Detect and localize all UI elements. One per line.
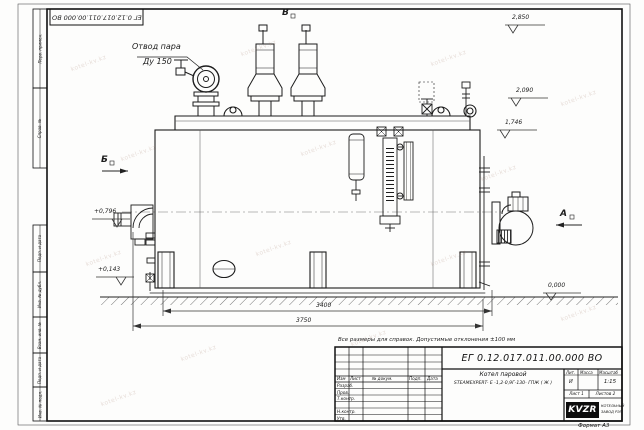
tb-header-ndocum: № докум.	[372, 376, 393, 381]
strip-label: Справ. №	[38, 118, 43, 137]
tb-product-name-line1: Котел паровой	[442, 371, 564, 378]
tb-sheet-text: Лист 1	[569, 391, 584, 396]
company-logo-text: KVZR	[568, 405, 597, 415]
steam-outlet-valve	[174, 60, 219, 116]
tb-sheets: Листов 2	[589, 391, 622, 396]
elevation-0143: +0,143	[98, 267, 120, 273]
safety-valve-1	[248, 25, 282, 116]
tb-header-izm: Изм	[337, 376, 346, 381]
strip-cell-invdubl: Инв. № дубл.	[33, 272, 47, 317]
elevation-0000: 0,000	[548, 283, 565, 289]
tb-row-razrab: Разраб.	[337, 383, 353, 388]
tb-mass-header: Масса	[580, 370, 593, 375]
elevation-1746: 1,746	[505, 120, 522, 126]
tb-product-name-line1-text: Котел паровой	[479, 371, 526, 378]
tb-row-nkontr: Н.контр.	[337, 409, 356, 414]
strip-cell-podp2: Подп. и дата	[33, 353, 47, 387]
tb-product-name-line2: STEAMEXPERT- Е -1,2-0,9Г-130- ГПЖ ( Ж )	[442, 381, 564, 386]
tb-company-line1: КОТЕЛЬНЫЙ	[601, 404, 624, 408]
title-doc-number: ЕГ 0.12.017.011.00.000 ВО	[442, 347, 622, 369]
dim-3400: 3400	[316, 303, 331, 309]
company-logo: KVZR	[566, 402, 599, 418]
elevation-marks	[92, 25, 581, 300]
tb-row-tkontr: Т.контр.	[337, 396, 355, 401]
steam-outlet-label-line2: Ду 150	[143, 58, 172, 66]
top-fittings	[419, 82, 470, 116]
elevation-0796: +0,796	[94, 209, 116, 215]
tb-scale-value: 1:15	[598, 379, 622, 385]
strip-cell-vzam: Взам. инв. №	[33, 317, 47, 353]
view-label-v: В	[282, 9, 289, 18]
strip-cell-podp1: Подп. и дата	[33, 225, 47, 272]
tb-row-prov: Пров.	[337, 390, 349, 395]
view-label-a: А	[560, 210, 567, 219]
tb-product-name-line2-text: STEAMEXPERT- Е -1,2-0,9Г-130- ГПЖ ( Ж )	[454, 381, 552, 386]
tb-company-line2: ЗАВОД РЭП	[601, 410, 622, 414]
dimension-lines	[133, 232, 492, 331]
tb-scale-header: Масштаб	[599, 370, 618, 375]
reference-note: Все размеры для справок. Допустимые откл…	[338, 338, 515, 344]
elevation-2850: 2,850	[512, 15, 529, 21]
drawing-sheet: { "watermark": {"text": "kotel-kv.kz"}, …	[0, 0, 644, 430]
top-left-doc-code: ЕГ 0.12.017.011.00.000 ВО	[50, 9, 143, 25]
strip-label: Инв. № дубл.	[38, 281, 43, 308]
top-left-doc-code-text: ЕГ 0.12.017.011.00.000 ВО	[52, 14, 142, 21]
tb-scale-value-text: 1:15	[604, 379, 616, 385]
strip-label: Взам. инв. №	[38, 321, 43, 348]
view-label-b: Б	[101, 156, 108, 165]
water-level-column	[349, 127, 413, 232]
strip-label: Перв. примен.	[38, 33, 43, 63]
elevation-2090: 2,090	[516, 88, 533, 94]
strip-cell-sprav: Справ. №	[33, 88, 47, 168]
steam-outlet-label-line1: Отвод пара	[132, 43, 181, 51]
tb-lit-value: И	[569, 379, 573, 385]
tb-header-data: Дата	[427, 376, 438, 381]
tb-sheets-text: Листов 2	[596, 391, 616, 396]
tb-lit-header: Лит.	[566, 370, 575, 375]
dim-3750: 3750	[296, 318, 311, 324]
title-doc-number-text: ЕГ 0.12.017.011.00.000 ВО	[461, 353, 602, 364]
ground-line	[100, 297, 618, 305]
strip-cell-perv: Перв. примен.	[33, 9, 47, 88]
tb-header-list: Лист	[350, 376, 361, 381]
format-note: Формат А3	[578, 423, 609, 429]
burner	[492, 192, 533, 245]
tb-header-podp: Подп.	[409, 376, 422, 381]
strip-cell-invpodl: Инв. № подл.	[33, 387, 47, 421]
strip-label: Подп. и дата	[38, 356, 43, 383]
tb-sheet: Лист 1	[564, 391, 589, 396]
tb-row-utv: Утв.	[337, 416, 346, 421]
strip-label: Инв. № подл.	[38, 390, 43, 418]
safety-valve-2	[291, 25, 325, 116]
strip-label: Подп. и дата	[38, 235, 43, 262]
